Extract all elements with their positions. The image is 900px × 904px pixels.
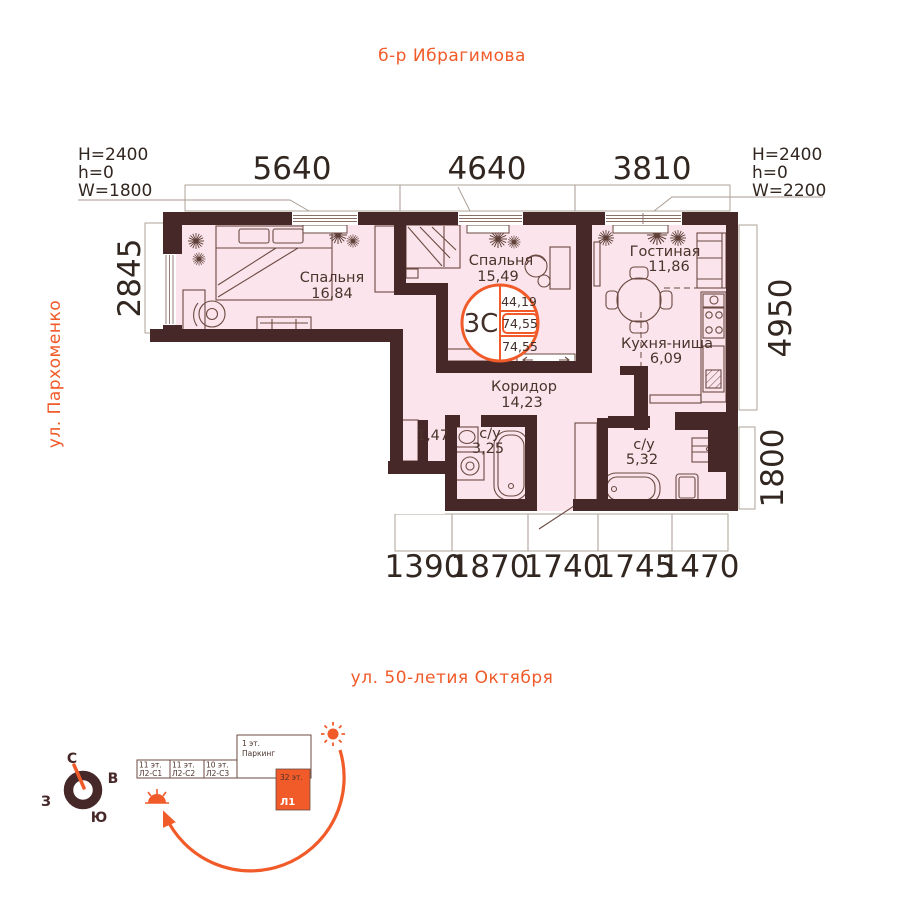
dim-bottom-2: 1870 [451, 549, 530, 585]
dim-top-2: 4640 [448, 151, 527, 187]
unit-area-total: 74,55 [502, 316, 538, 331]
unit-badge: 3С 44,19 74,55 74,55 [462, 285, 538, 361]
sun-icon [321, 722, 345, 746]
tower-highlighted: 32 эт. Л1 [276, 769, 310, 810]
street-label-left: ул. Пархоменко [45, 300, 65, 448]
site-plan: С В З Ю 11 эт. Л2-С1 11 эт. Л2-С2 10 эт.… [41, 722, 345, 871]
spec-left-h: H=2400 [78, 145, 148, 165]
room-bedroom2-area: 15,49 [477, 269, 519, 285]
room-bedroom2-name: Спальня [469, 253, 534, 269]
room-closet-area: 1,47 [417, 428, 449, 444]
parking-name: Паркинг [242, 749, 275, 758]
spec-right-h: H=2400 [752, 145, 822, 165]
dim-bottom-5: 1470 [661, 549, 740, 585]
dim-top-1: 5640 [253, 151, 332, 187]
room-bath-big-name: с/у [633, 437, 655, 453]
compass-east: В [108, 771, 119, 787]
tower-name: Л1 [280, 797, 295, 808]
floorplan-page: б-р Ибрагимова ул. Пархоменко ул. 50-лет… [0, 0, 900, 900]
room-bedroom1-area: 16,84 [311, 286, 353, 302]
unit-area-full: 74,55 [502, 339, 538, 354]
dim-right-1: 4950 [763, 279, 799, 358]
room-bedroom1-name: Спальня [300, 270, 365, 286]
room-kitchen-name: Кухня-ниша [621, 336, 713, 352]
section1-name: Л2-С1 [139, 769, 162, 778]
unit-type-label: 3С [464, 309, 499, 339]
room-corridor-area: 14,23 [501, 395, 543, 411]
section3-name: Л2-С3 [206, 769, 229, 778]
room-bath-big-area: 5,32 [626, 452, 658, 468]
room-kitchen-area: 6,09 [650, 351, 682, 367]
room-bath-small-name: с/у [479, 426, 501, 442]
compass-south: Ю [91, 810, 107, 826]
window-bedroom1 [292, 212, 358, 225]
room-corridor-name: Коридор [491, 379, 557, 395]
room-living-name: Гостиная [630, 244, 701, 260]
dim-right-2: 1800 [755, 429, 791, 508]
dim-bottom-3: 1740 [524, 549, 603, 585]
window-spec-left: H=2400 h=0 W=1800 [78, 145, 152, 201]
dim-left-1: 2845 [112, 239, 148, 318]
sunset-icon [145, 789, 169, 803]
spec-right-hh: h=0 [752, 163, 788, 183]
street-label-top: б-р Ибрагимова [378, 46, 526, 66]
section2-name: Л2-С2 [172, 769, 195, 778]
window-spec-right: H=2400 h=0 W=2200 [752, 145, 826, 201]
spec-left-w: W=1800 [78, 181, 152, 201]
window-left [163, 254, 176, 325]
street-label-bottom: ул. 50-летия Октября [351, 668, 554, 688]
spec-left-hh: h=0 [78, 163, 114, 183]
room-living-area: 11,86 [648, 259, 690, 275]
parking-floors: 1 эт. [242, 739, 260, 748]
tower-floors: 32 эт. [280, 773, 303, 782]
compass: С В З Ю [41, 751, 118, 826]
room-bath-small-area: 3,25 [472, 441, 504, 457]
compass-west: З [41, 794, 51, 810]
floorplan-canvas: б-р Ибрагимова ул. Пархоменко ул. 50-лет… [0, 0, 900, 900]
dim-top-3: 3810 [613, 151, 692, 187]
compass-north: С [67, 751, 77, 767]
unit-area-living: 44,19 [501, 294, 537, 309]
spec-right-w: W=2200 [752, 181, 826, 201]
window-bedroom2 [458, 212, 523, 225]
window-living [605, 212, 682, 225]
